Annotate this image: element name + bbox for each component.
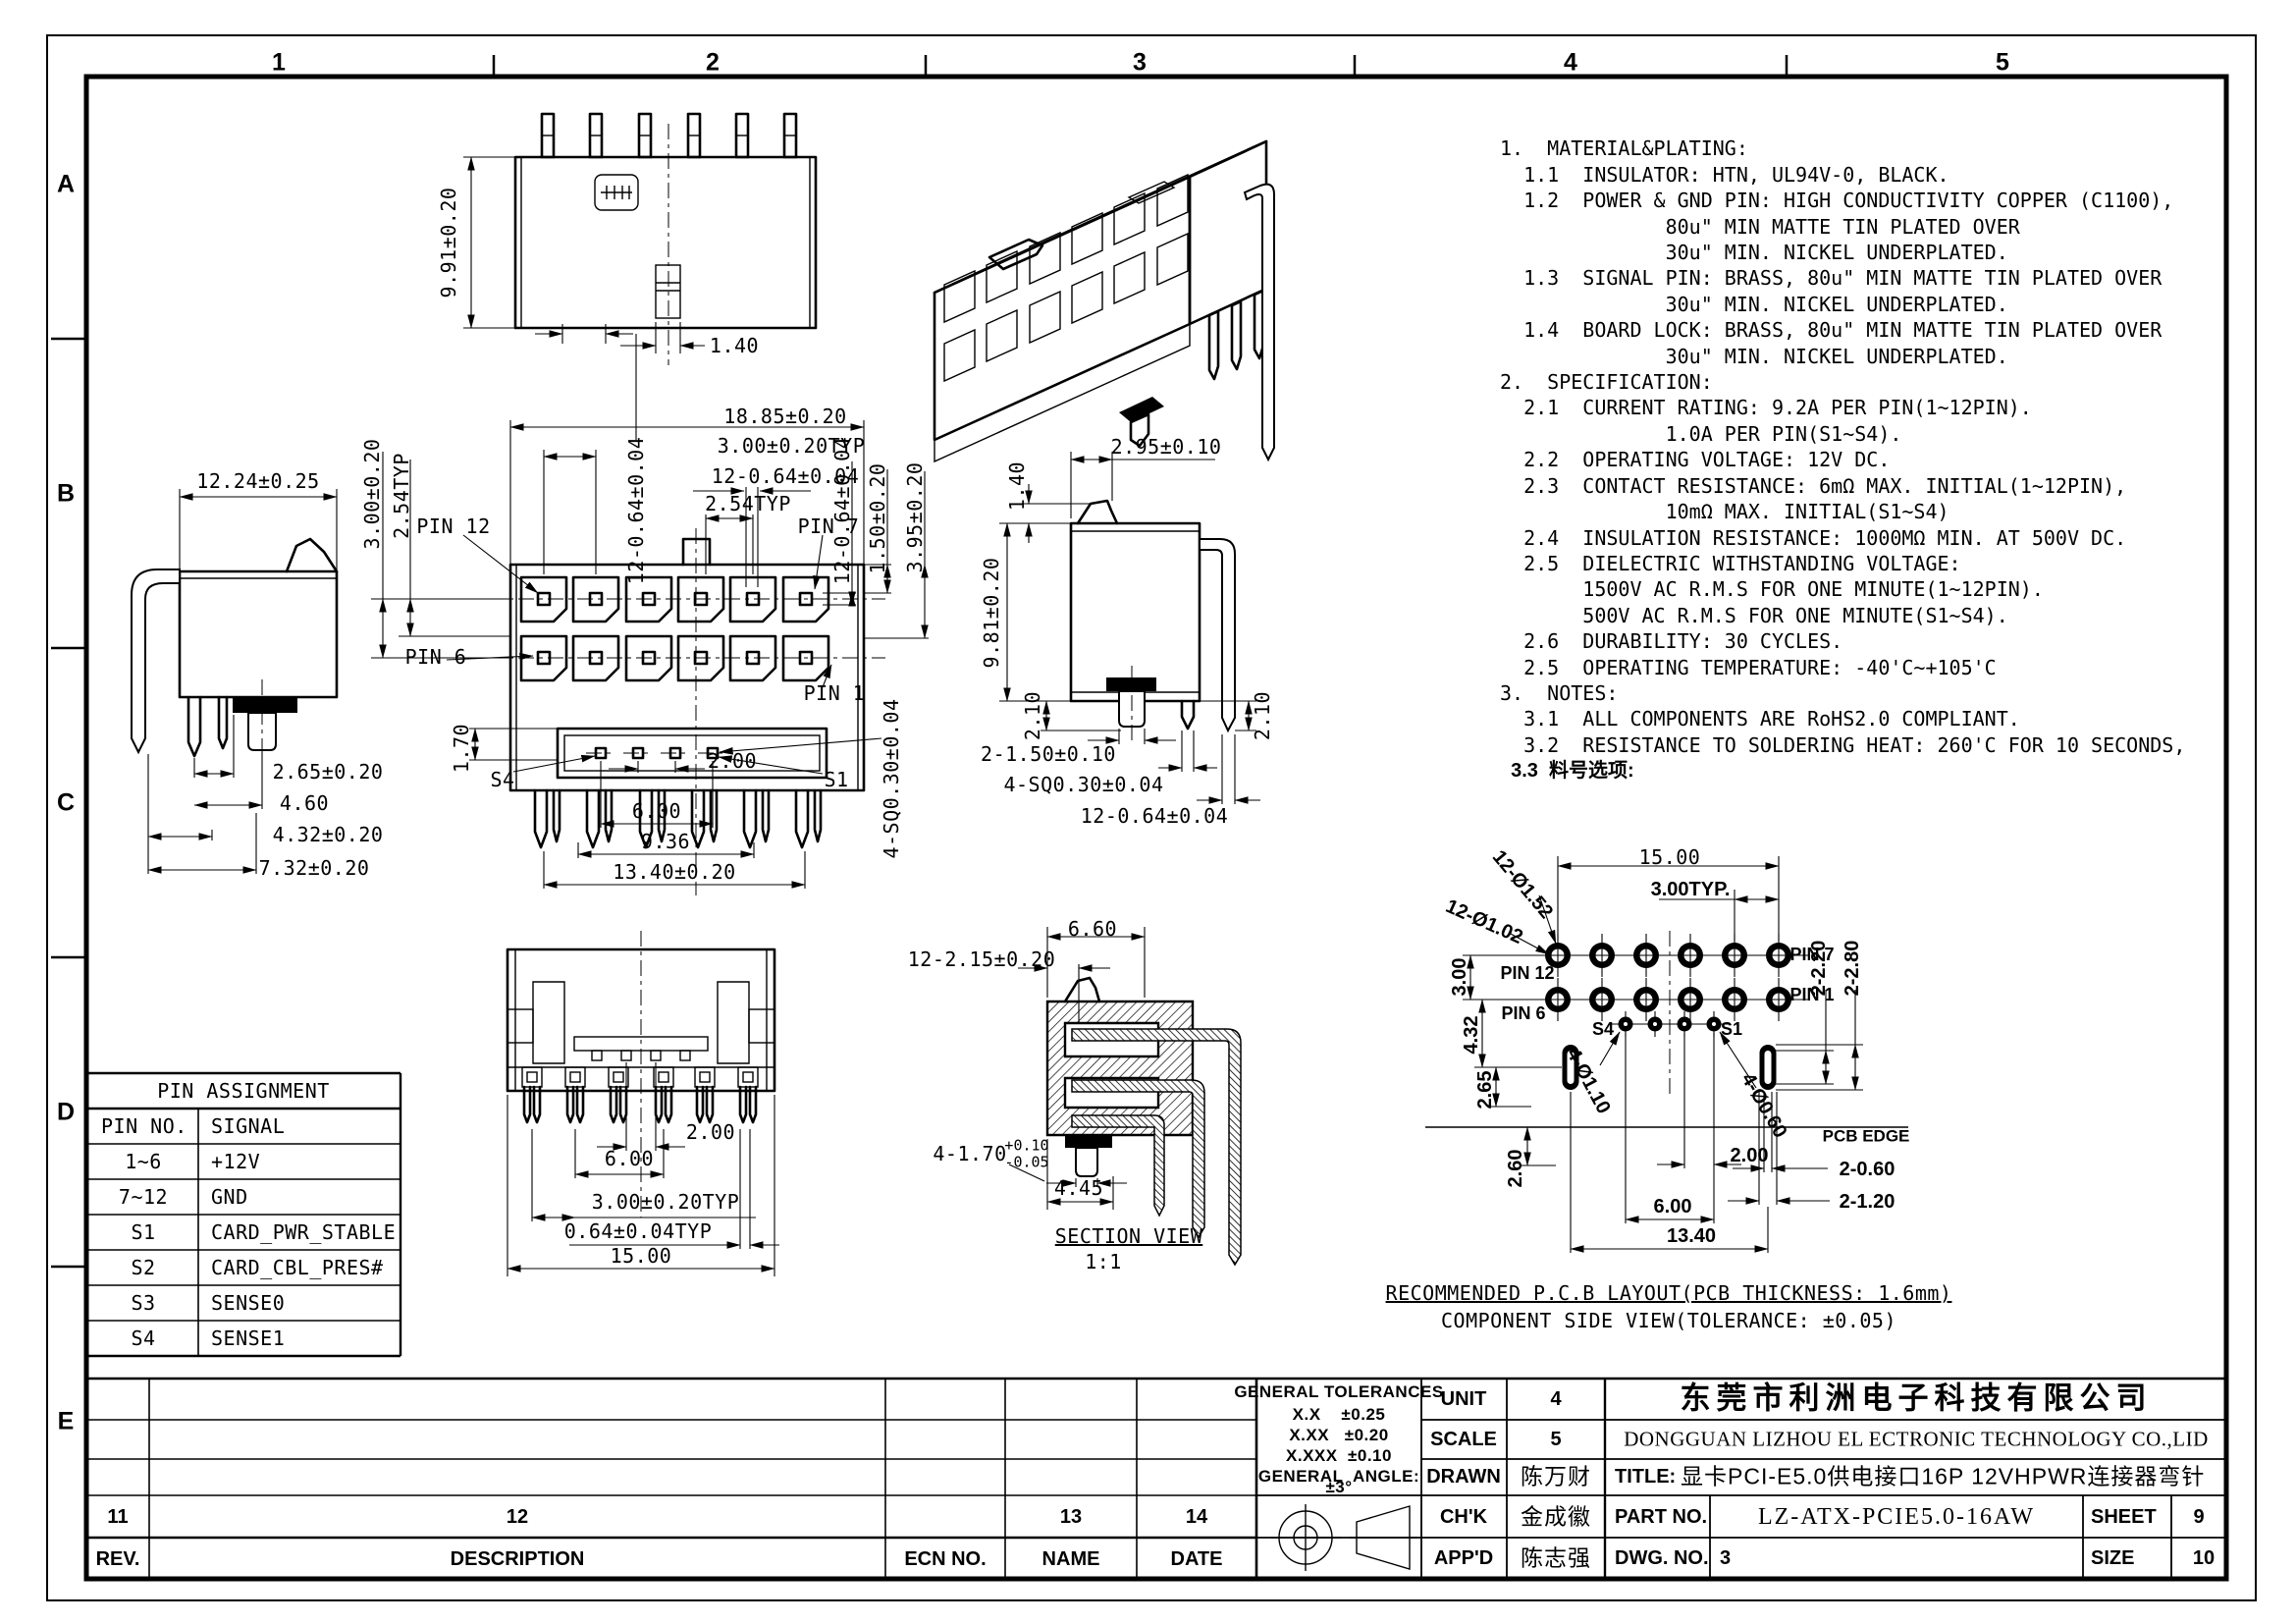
left-side-view-linework xyxy=(132,489,337,874)
title-block-linework xyxy=(86,1379,2226,1579)
pcb-layout-linework xyxy=(1425,856,1908,1253)
engineering-drawing-sheet: 1 2 3 4 5 A B C D E 1. MATERIAL&PLATING:… xyxy=(0,0,2296,1624)
isometric-view-linework xyxy=(934,141,1274,461)
right-side-view-linework xyxy=(999,452,1260,804)
top-view-linework xyxy=(463,114,816,365)
front-view-linework xyxy=(371,324,929,895)
drawing-linework xyxy=(0,0,2296,1624)
bottom-view-linework xyxy=(507,931,779,1276)
pin-table-linework xyxy=(86,1073,400,1356)
section-view-linework xyxy=(1009,927,1241,1265)
sheet-frame xyxy=(47,35,2256,1600)
